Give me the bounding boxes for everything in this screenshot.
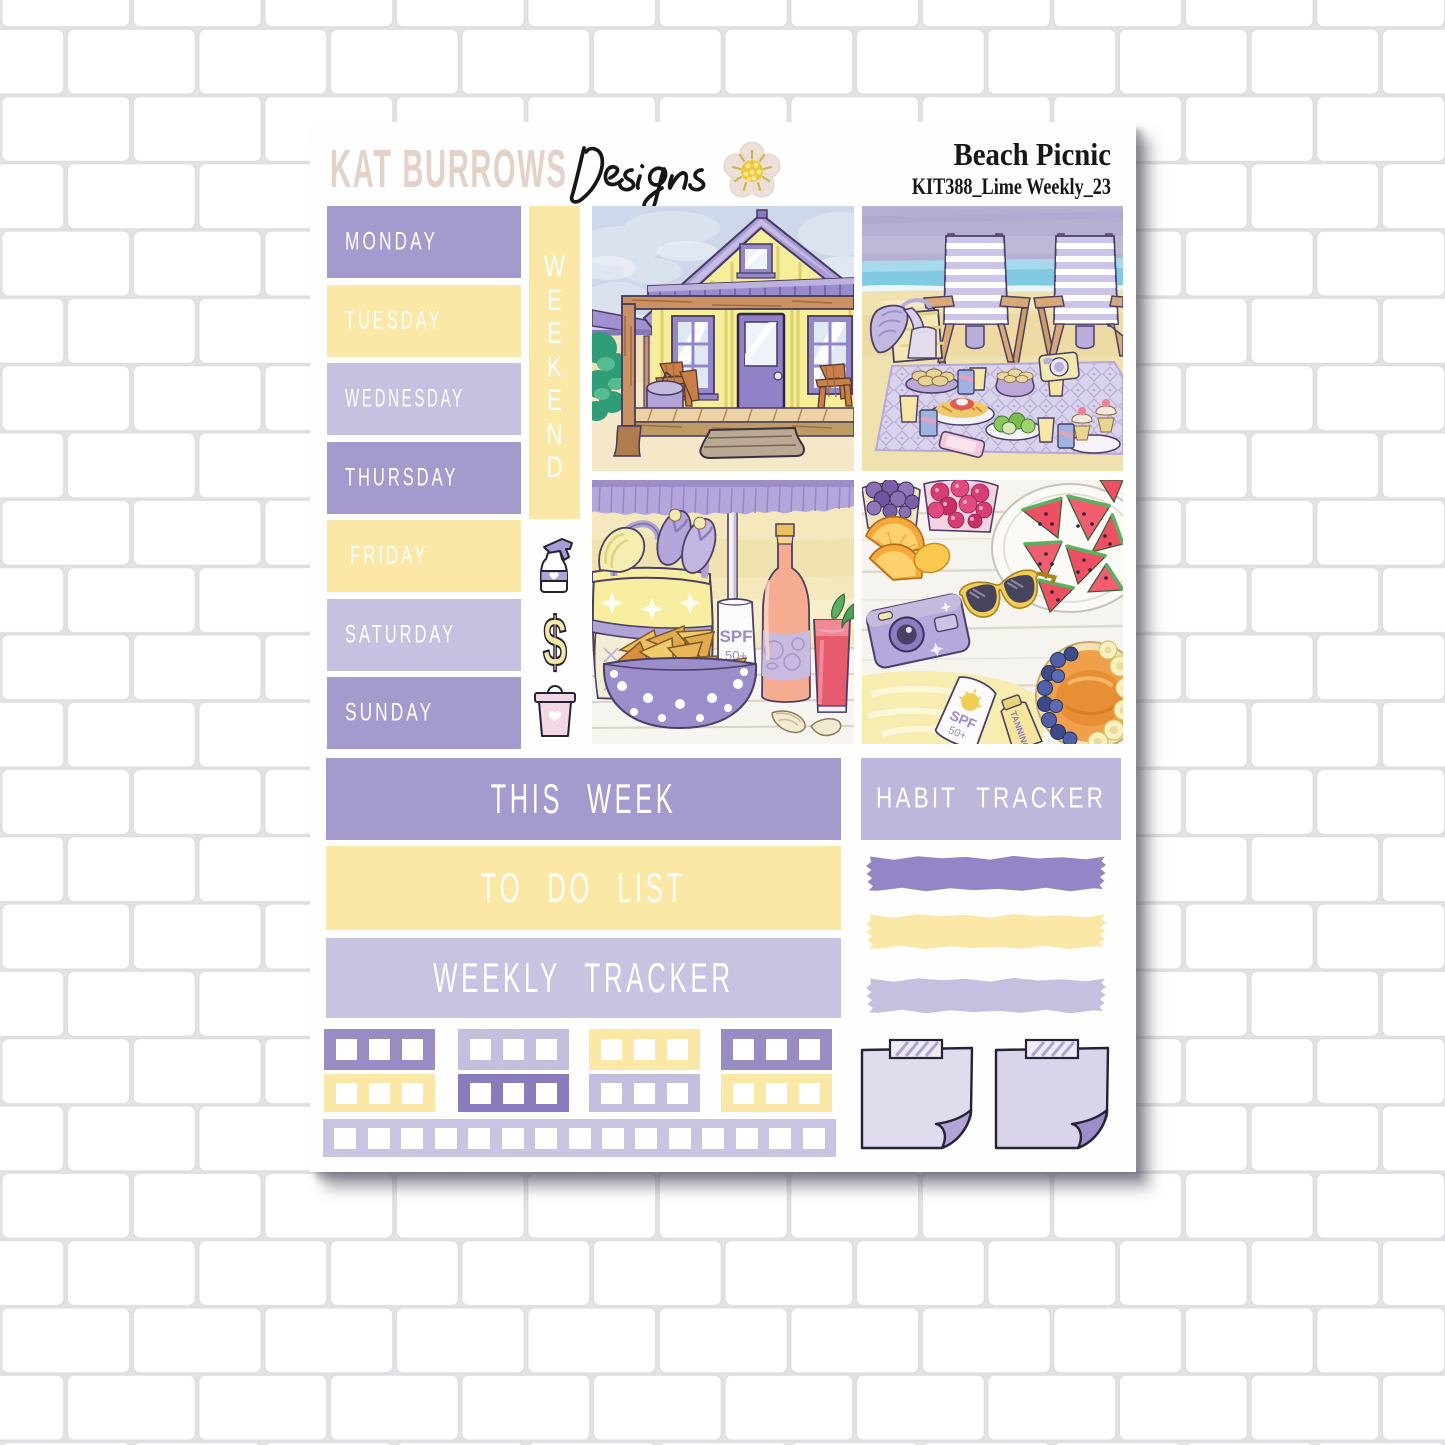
svg-text:$: $ xyxy=(543,609,567,673)
svg-text:SPF: SPF xyxy=(719,627,752,646)
